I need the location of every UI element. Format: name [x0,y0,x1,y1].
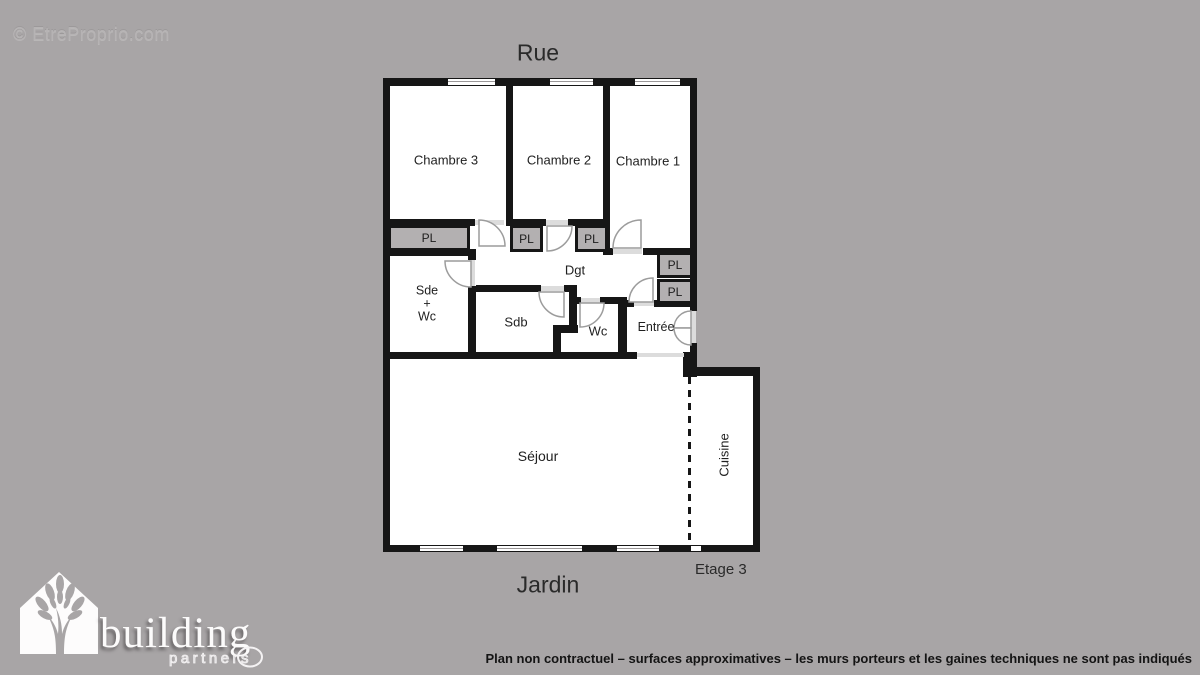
door-sill [469,260,475,286]
door-sill [546,220,568,225]
wall [468,286,476,352]
wall [476,285,541,292]
room-label-wc: Wc [589,324,608,339]
door-sill [475,220,504,225]
wall [553,325,578,333]
wall [573,297,581,304]
window [420,546,463,551]
room-label-sdb: Sdb [504,315,527,330]
wall [683,352,697,377]
closet-pl: PL [510,225,543,252]
door-sill [691,311,696,343]
open-passage [637,353,684,357]
window [550,79,593,85]
room-label-degagement: Dgt [565,263,585,278]
garden-label: Jardin [517,572,580,599]
door-sill [613,249,642,254]
window [448,79,495,85]
street-label: Rue [517,40,559,67]
room-label-chambre1: Chambre 1 [616,154,680,169]
room-label-chambre3: Chambre 3 [414,153,478,168]
door-sill [634,301,654,306]
window [497,546,582,551]
logo-house-icon [18,570,102,658]
closet-pl: PL [575,225,608,252]
room-label-sde-wc: Sde + Wc [416,285,438,324]
window [617,546,659,551]
closet-pl: PL [388,225,470,251]
wall [753,367,760,552]
door-sill [541,286,564,291]
logo-swirl-icon [236,646,264,669]
dashed-partition [688,377,691,545]
room-label-entree: Entrée [638,320,675,334]
room-label-chambre2: Chambre 2 [527,153,591,168]
disclaimer: Plan non contractuel – surfaces approxim… [485,651,1192,666]
wall [627,300,634,307]
floor-plan-page: © EtreProprio.com Rue Jardin Etage 3 [0,0,1200,675]
wall [506,86,513,226]
wall [618,297,627,352]
room-label-sde-line3: Wc [416,311,438,324]
wall [383,352,637,359]
wall [383,78,390,552]
wall-gap [691,546,701,551]
wall [553,333,561,352]
closet-pl: PL [657,279,693,304]
door-sill [581,298,600,303]
wall [690,367,760,376]
watermark: © EtreProprio.com [13,24,170,45]
closet-pl: PL [657,252,693,278]
room-label-cuisine: Cuisine [717,433,732,476]
window [635,79,680,85]
floor-label: Etage 3 [695,561,747,578]
room-label-sejour: Séjour [518,448,558,464]
